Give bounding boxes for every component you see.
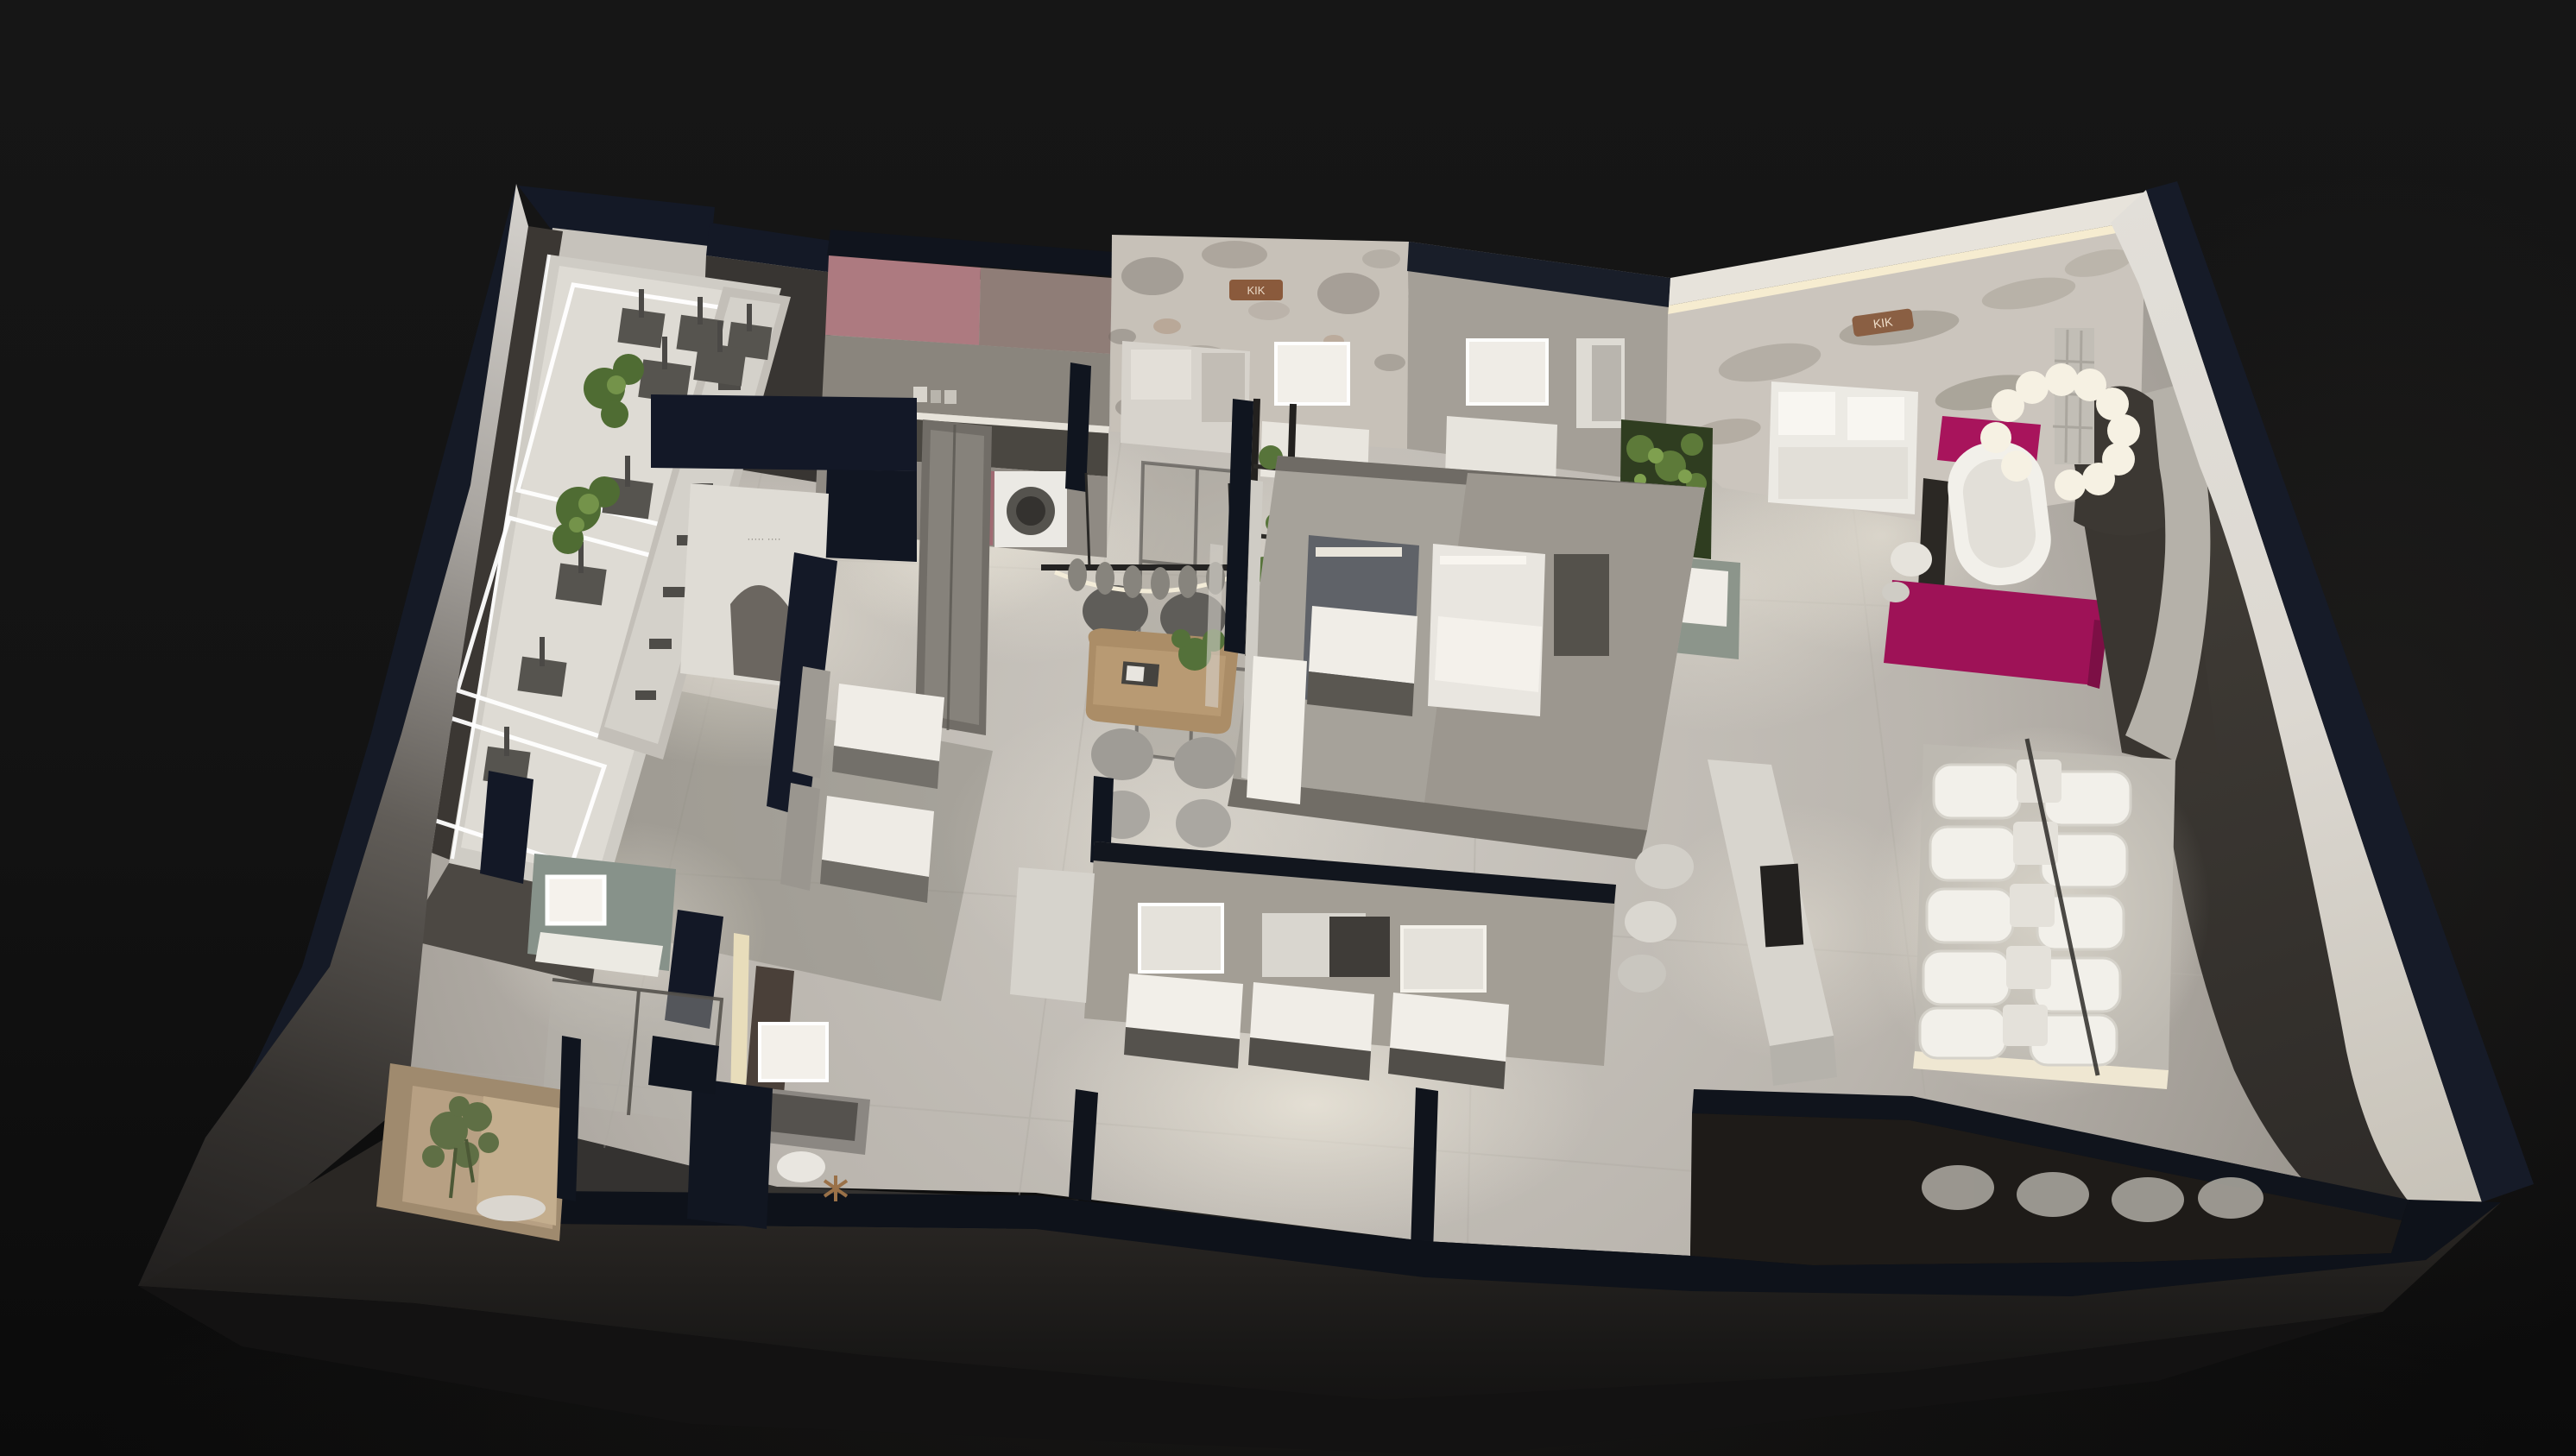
- svg-text:KIK: KIK: [1247, 284, 1266, 297]
- svg-text:KIK: KIK: [1872, 314, 1894, 331]
- svg-text:····· ····: ····· ····: [747, 533, 780, 545]
